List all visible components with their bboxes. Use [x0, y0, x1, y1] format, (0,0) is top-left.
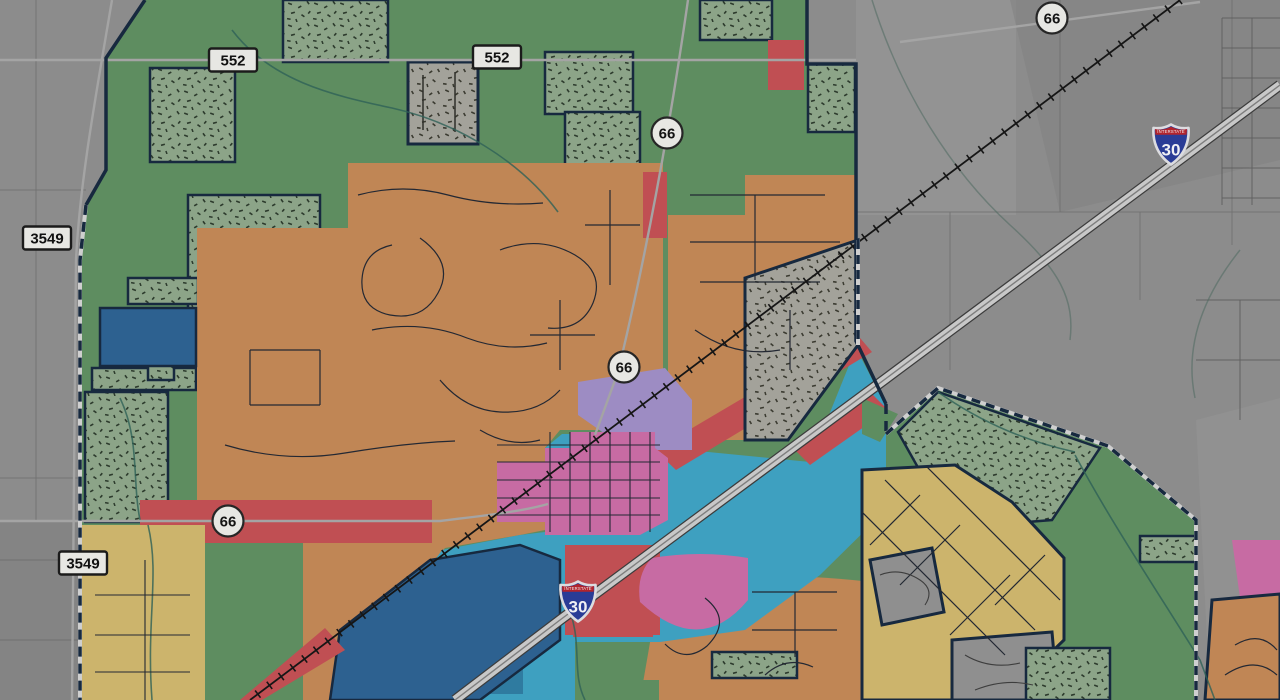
zone-agricultural-green	[665, 163, 745, 215]
zone-floodplain-speckled-part	[700, 0, 772, 40]
zoning-main-area	[80, 0, 888, 700]
map-canvas[interactable]: 5525523549354966666666INTERSTATE30INTERS…	[0, 0, 1280, 700]
aerial-basemap-part	[0, 520, 80, 700]
zone-floodplain-speckled-part	[150, 68, 235, 162]
interstate-shield-number: 30	[569, 598, 588, 617]
route-shield-number: 66	[616, 360, 633, 377]
route-shield-circle-66: 66	[652, 118, 683, 149]
route-shield-rect-3549: 3549	[23, 227, 71, 250]
route-shield-rect-3549: 3549	[59, 552, 107, 575]
interstate-shield-caption: INTERSTATE	[1157, 129, 1184, 134]
zone-holdout-gray-speckled-part	[408, 62, 478, 144]
zone-park-green	[597, 680, 659, 700]
zone-retail-red-part	[768, 40, 804, 90]
route-shield-number: 552	[220, 53, 245, 70]
zone-floodplain-fingers-part	[1026, 648, 1110, 700]
route-shield-number: 66	[659, 126, 676, 143]
route-shield-rect-552: 552	[473, 46, 521, 69]
zone-floodplain-fingers-part	[1140, 536, 1196, 562]
interstate-shield-caption: INTERSTATE	[564, 586, 591, 591]
zone-floodplain-speckled-part	[808, 64, 855, 132]
route-shield-circle-66: 66	[1037, 3, 1068, 34]
zone-pink-corner	[1232, 540, 1280, 598]
route-shield-number: 552	[484, 50, 509, 67]
map-frame: 5525523549354966666666INTERSTATE30INTERS…	[0, 0, 1280, 700]
route-shield-circle-66: 66	[609, 352, 640, 383]
zone-industrial-dark-blue-part	[100, 308, 196, 366]
route-shield-number: 3549	[66, 556, 99, 573]
zone-holdout-aerial-parcels-part	[870, 548, 944, 625]
zone-residential-orange-corner	[1205, 594, 1280, 700]
route-shield-circle-66: 66	[213, 506, 244, 537]
route-shield-rect-552: 552	[209, 49, 257, 72]
interstate-shield-number: 30	[1162, 141, 1181, 160]
park-speckled-rect	[712, 652, 797, 678]
route-shield-number: 66	[1044, 11, 1061, 28]
zone-floodplain-speckled-part	[128, 278, 198, 304]
route-shield-number: 66	[220, 514, 237, 531]
zone-floodplain-speckled-part	[92, 368, 196, 390]
zone-floodplain-speckled-part	[283, 0, 388, 62]
route-shield-number: 3549	[30, 231, 63, 248]
zone-floodplain-speckled-part	[545, 52, 633, 114]
